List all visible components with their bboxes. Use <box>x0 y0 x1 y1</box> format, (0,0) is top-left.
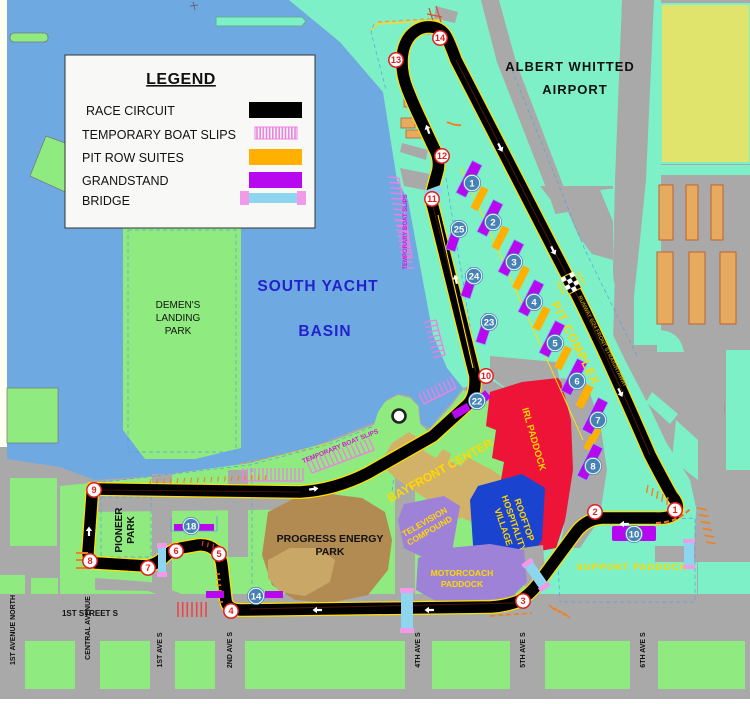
svg-text:6TH AVE S: 6TH AVE S <box>640 632 647 668</box>
svg-text:2ND AVE S: 2ND AVE S <box>227 632 234 669</box>
svg-text:13: 13 <box>391 55 401 65</box>
svg-text:3: 3 <box>520 596 525 606</box>
svg-text:14: 14 <box>251 591 262 602</box>
svg-text:4: 4 <box>531 297 537 308</box>
svg-text:5: 5 <box>216 549 221 559</box>
svg-text:1ST AVENUE NORTH: 1ST AVENUE NORTH <box>10 595 17 665</box>
svg-text:9: 9 <box>91 485 96 495</box>
svg-text:2: 2 <box>490 217 495 228</box>
svg-text:24: 24 <box>469 271 480 282</box>
svg-text:SUPPORT PADDOCK: SUPPORT PADDOCK <box>577 562 688 573</box>
svg-text:LEGEND: LEGEND <box>146 71 216 88</box>
svg-text:BRIDGE: BRIDGE <box>82 194 130 208</box>
svg-text:11: 11 <box>427 194 437 204</box>
svg-text:RACE CIRCUIT: RACE CIRCUIT <box>86 104 175 118</box>
svg-text:PIONEER: PIONEER <box>114 507 125 553</box>
svg-text:3: 3 <box>511 257 516 268</box>
svg-text:1: 1 <box>469 178 475 189</box>
svg-text:MOTORCOACH: MOTORCOACH <box>431 568 494 578</box>
svg-text:SOUTH YACHT: SOUTH YACHT <box>257 278 378 295</box>
svg-text:AIRPORT: AIRPORT <box>542 82 608 97</box>
svg-text:BASIN: BASIN <box>298 323 351 340</box>
svg-text:1ST AVE S: 1ST AVE S <box>157 632 164 667</box>
svg-text:8: 8 <box>87 556 92 566</box>
svg-text:5TH AVE S: 5TH AVE S <box>520 632 527 668</box>
svg-text:6: 6 <box>173 546 178 556</box>
svg-text:7: 7 <box>145 563 150 573</box>
svg-text:CENTRAL AVENUE: CENTRAL AVENUE <box>85 596 92 660</box>
svg-text:1: 1 <box>672 505 677 515</box>
svg-text:12: 12 <box>437 151 447 161</box>
svg-text:PADDOCK: PADDOCK <box>441 579 484 589</box>
svg-text:23: 23 <box>484 317 495 328</box>
svg-text:ALBERT WHITTED: ALBERT WHITTED <box>505 59 635 74</box>
svg-text:PARK: PARK <box>126 515 137 543</box>
svg-text:5: 5 <box>552 338 558 349</box>
svg-text:10: 10 <box>481 371 491 381</box>
svg-text:14: 14 <box>435 33 446 43</box>
svg-text:22: 22 <box>472 396 483 407</box>
svg-text:25: 25 <box>454 224 465 235</box>
svg-text:10: 10 <box>629 529 640 540</box>
svg-text:6: 6 <box>574 376 579 387</box>
svg-text:TEMPORARY BOAT SLIPS: TEMPORARY BOAT SLIPS <box>403 194 409 269</box>
svg-text:4TH AVE S: 4TH AVE S <box>415 632 422 668</box>
svg-text:TEMPORARY BOAT SLIPS: TEMPORARY BOAT SLIPS <box>82 128 236 142</box>
svg-text:18: 18 <box>186 521 197 532</box>
svg-text:8: 8 <box>590 461 595 472</box>
svg-text:2: 2 <box>592 507 597 517</box>
svg-text:7: 7 <box>595 415 600 426</box>
svg-text:GRANDSTAND: GRANDSTAND <box>82 174 169 188</box>
svg-text:4: 4 <box>228 606 234 616</box>
svg-text:PIT ROW SUITES: PIT ROW SUITES <box>82 151 184 165</box>
